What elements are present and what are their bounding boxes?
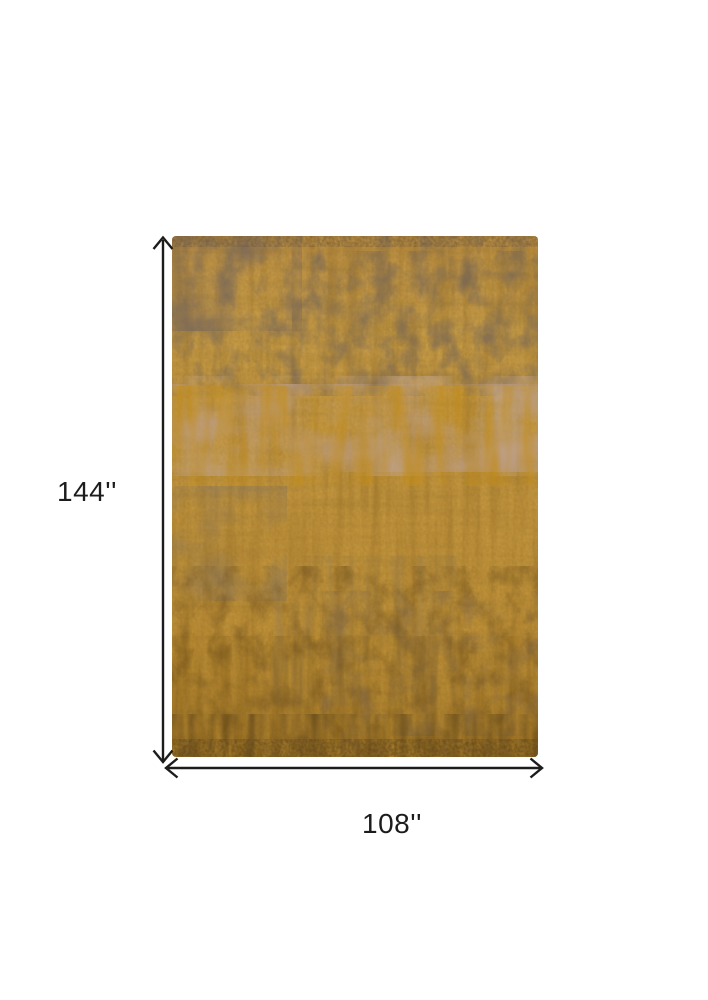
height-dimension-label: 144'' [40, 478, 134, 506]
rug-texture [172, 236, 538, 757]
arrowhead-up-icon [154, 238, 173, 250]
height-dimension-arrow [154, 238, 173, 763]
arrowhead-down-icon [154, 751, 173, 763]
width-dimension-label: 108'' [352, 810, 432, 838]
arrowhead-right-icon [531, 759, 543, 778]
product-dimension-figure: 144'' 108'' [0, 0, 708, 1000]
width-dimension-arrow [166, 759, 542, 778]
rug-product-image [172, 236, 538, 757]
arrowhead-left-icon [166, 759, 178, 778]
